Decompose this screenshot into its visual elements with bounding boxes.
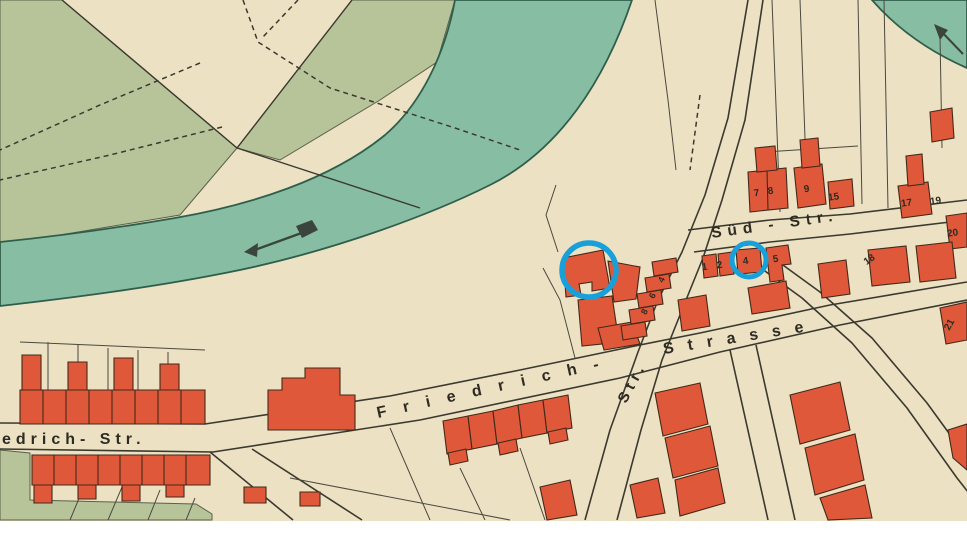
house-number: 15 [827, 191, 840, 204]
house-number: 19 [929, 195, 942, 208]
building [468, 411, 497, 449]
building [300, 492, 320, 506]
building [630, 478, 665, 518]
city-map-canvas: edrich- Str. Friedrich- Str. Strasse Süd… [0, 0, 967, 559]
building-highlighted-2 [736, 248, 762, 274]
house-number: 17 [900, 197, 913, 210]
building [22, 355, 41, 390]
building [244, 487, 266, 503]
building [543, 395, 572, 433]
building [868, 246, 910, 286]
street-label-friedrich-partial: edrich- Str. [2, 431, 146, 448]
building [68, 362, 87, 390]
house-number: 20 [946, 227, 959, 240]
building [678, 295, 710, 331]
building [906, 154, 924, 186]
building [794, 164, 826, 208]
building [122, 485, 140, 501]
building [930, 108, 954, 142]
building [114, 358, 133, 390]
building [916, 242, 956, 282]
building [34, 485, 52, 503]
building [755, 146, 777, 172]
building [166, 485, 184, 497]
building [443, 416, 472, 454]
building [493, 405, 522, 444]
building [518, 400, 547, 438]
building [540, 480, 577, 520]
terrace-row-south [32, 455, 210, 485]
building [800, 138, 820, 168]
building [818, 260, 850, 298]
building [160, 364, 179, 390]
bottom-margin [0, 521, 967, 559]
building [78, 485, 96, 499]
map-screenshot: edrich- Str. Friedrich- Str. Strasse Süd… [0, 0, 967, 559]
